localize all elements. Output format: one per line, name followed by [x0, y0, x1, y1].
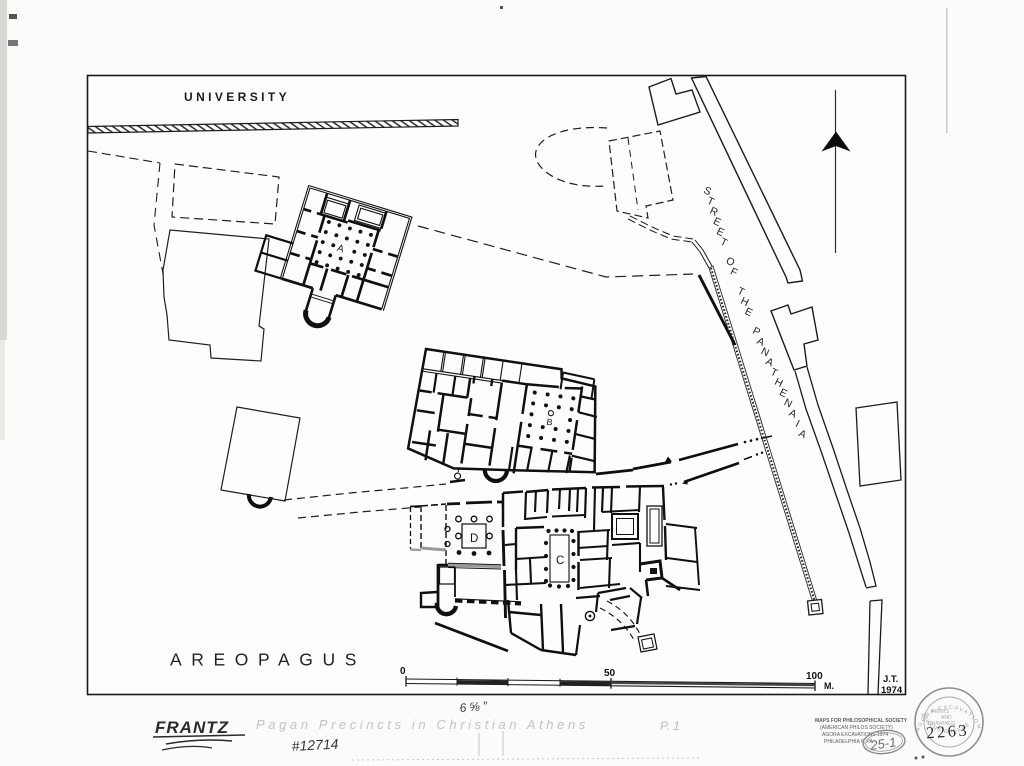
svg-text:1974: 1974 — [881, 685, 903, 696]
svg-text:6 ⅝ ″: 6 ⅝ ″ — [459, 699, 488, 715]
svg-text:50: 50 — [604, 668, 616, 679]
svg-text:M.: M. — [824, 681, 834, 691]
svg-text:100: 100 — [806, 671, 823, 682]
svg-text:P. 1: P. 1 — [660, 719, 680, 733]
svg-text:#12714: #12714 — [291, 736, 339, 754]
svg-text:MAPS FOR PHILOSOPHICAL SOCIETY: MAPS FOR PHILOSOPHICAL SOCIETY — [815, 718, 908, 724]
svg-text:J.T.: J.T. — [883, 674, 898, 685]
svg-text:Pagan Precincts in Christia: Pagan Precincts in Christian Athens — [256, 717, 589, 732]
svg-text:UNIVERSITY: UNIVERSITY — [184, 90, 290, 104]
svg-text:D: D — [470, 533, 478, 545]
svg-text:0: 0 — [400, 666, 406, 677]
svg-text:2263: 2263 — [925, 720, 969, 742]
svg-text:FRANTZ: FRANTZ — [155, 718, 229, 737]
svg-text:AREOPAGUS: AREOPAGUS — [170, 650, 366, 670]
svg-text:C: C — [556, 555, 564, 567]
